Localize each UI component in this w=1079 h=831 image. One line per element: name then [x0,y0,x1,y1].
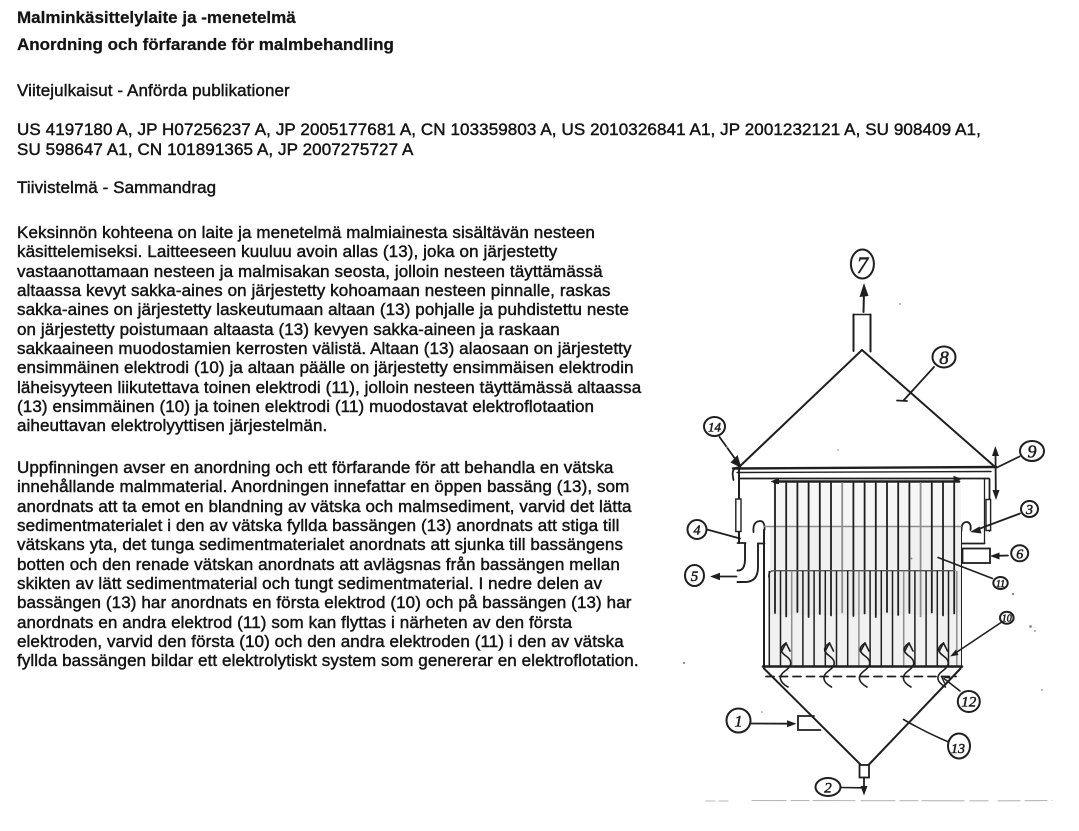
svg-text:13: 13 [951,742,965,757]
svg-text:12: 12 [961,695,977,711]
svg-text:3: 3 [1025,503,1033,518]
svg-text:1: 1 [735,714,743,731]
svg-text:11: 11 [996,579,1005,590]
svg-text:5: 5 [691,569,699,585]
svg-text:6: 6 [1016,547,1023,562]
svg-text:14: 14 [708,420,722,435]
svg-text:10: 10 [1002,614,1012,625]
svg-text:9: 9 [1028,442,1037,462]
svg-text:2: 2 [824,781,832,797]
svg-text:8: 8 [939,348,949,369]
svg-text:7: 7 [857,253,870,278]
svg-text:4: 4 [694,524,701,539]
